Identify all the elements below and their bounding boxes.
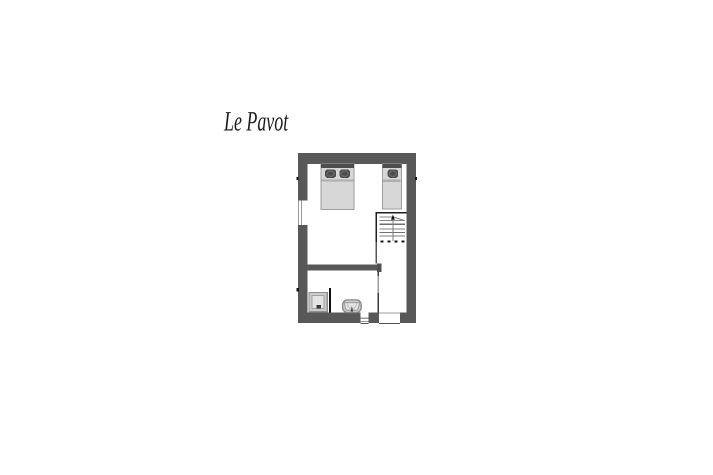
svg-text:Le Pavot: Le Pavot [223,107,289,138]
